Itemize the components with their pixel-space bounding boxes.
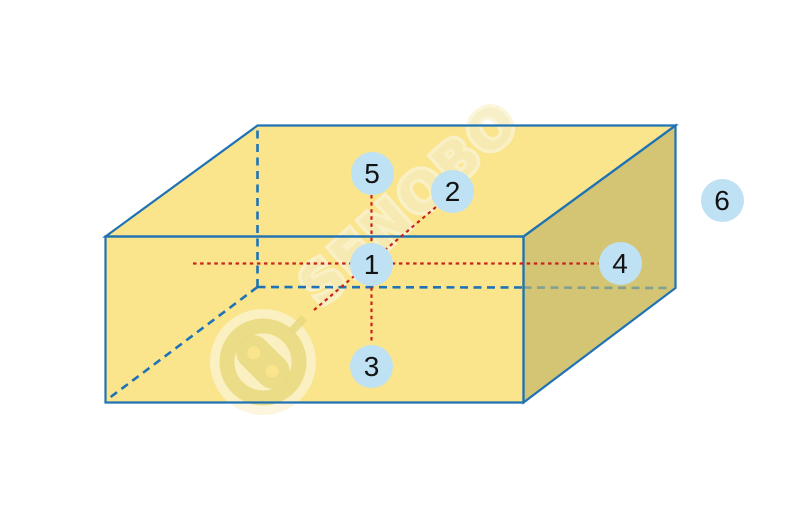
marker-4[interactable]: 4	[599, 242, 642, 285]
marker-6[interactable]: 6	[701, 179, 744, 222]
box-figure: SENOBO	[0, 0, 795, 521]
marker-1[interactable]: 1	[350, 243, 393, 286]
marker-2[interactable]: 2	[431, 170, 474, 213]
diagram-canvas: SENOBO 1 2 3 4 5 6	[0, 0, 795, 521]
marker-3[interactable]: 3	[350, 345, 393, 388]
marker-5[interactable]: 5	[351, 152, 394, 195]
